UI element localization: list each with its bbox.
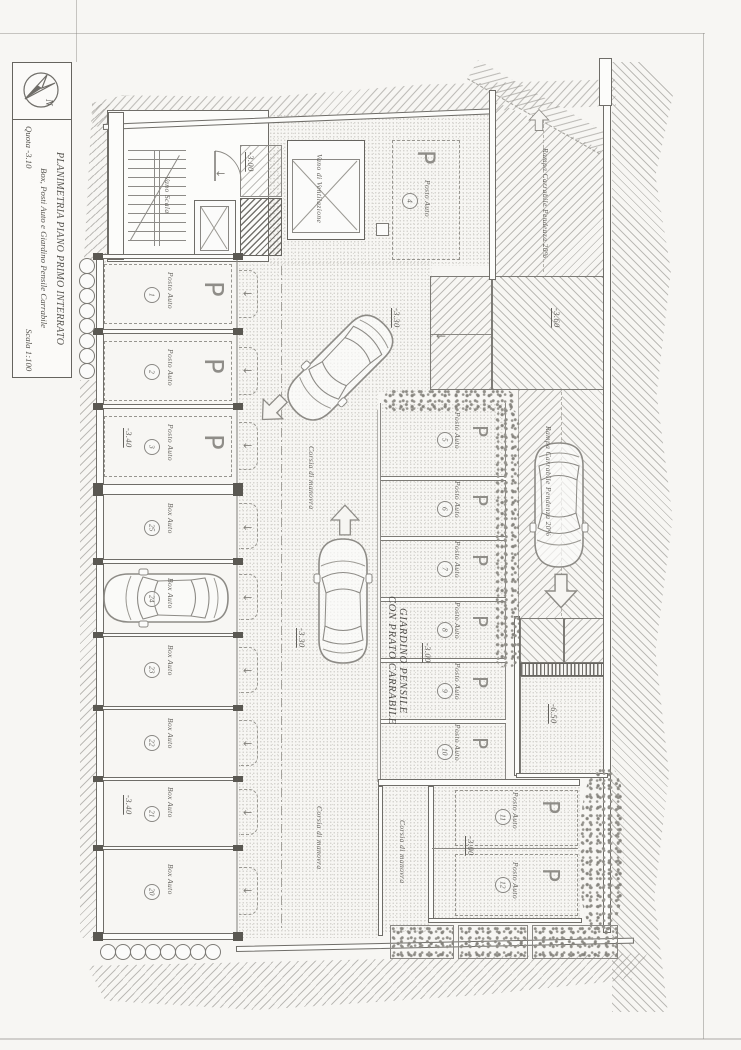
cell-wall: [96, 933, 238, 940]
drain-circle: [79, 273, 95, 289]
cell-wall: [96, 633, 238, 637]
vegetation-planter-3: [532, 925, 618, 959]
drain-circle: [79, 363, 95, 379]
spot-label-1: Posto Auto: [166, 272, 175, 309]
spot-label-12: Posto Auto: [511, 862, 520, 899]
door-arrow-icon-1: ←: [243, 288, 252, 299]
ramp-lane-label: Rampa Carrabile Pendenza 20%: [544, 426, 553, 537]
vegetation-planter-1: [390, 925, 454, 959]
drain-circle: [160, 944, 176, 960]
box-number-badge-23: 23: [144, 662, 160, 678]
box-number-badge-22: 22: [144, 735, 160, 751]
door-arrow-icon-23: ←: [243, 665, 252, 676]
cell-wall: [96, 706, 238, 710]
corsia-label-2: Corsia di manovra: [315, 806, 324, 869]
quota-garden: -3.00: [423, 643, 433, 663]
wall-right-stub: [599, 58, 612, 106]
spot-number-badge-6: 6: [437, 501, 453, 517]
stair-block-left-wall: [108, 112, 124, 260]
wall-garden-bottom: [378, 779, 580, 786]
ventilation-room-label: Vano di Ventilazione: [315, 154, 324, 223]
door-arrow-icon-3: ←: [243, 440, 252, 451]
corsia-up-arrow-icon: [330, 503, 360, 537]
door-arrow-icon-2: ←: [243, 365, 252, 376]
pit-chevron-left: [520, 618, 564, 663]
drain-circle: [145, 944, 161, 960]
title-block-text: PLANIMETRIA PIANO PRIMO INTERRATO Box, P…: [17, 126, 67, 371]
corsia-label-3: Corsia di manovra: [398, 820, 407, 883]
drain-circle: [100, 944, 116, 960]
scan-line-bottom: [0, 1038, 741, 1040]
ventilation-shaft: [287, 140, 365, 240]
spot-label-10: Posto Auto: [453, 724, 462, 761]
box-label-21: Box Auto: [166, 787, 175, 818]
garden-row-separator: [381, 476, 506, 481]
cell-wall: [96, 404, 238, 409]
spot-label-11: Posto Auto: [511, 792, 520, 829]
torn-band-bottom: [88, 953, 649, 1013]
box-number-badge-20: 20: [144, 884, 160, 900]
box-label-24: Box Auto: [166, 578, 175, 609]
pit-floor: [520, 676, 607, 775]
drawing-subtitle: Box, Posti Auto e Giardino Pensile Carra…: [36, 126, 51, 371]
spot-number-badge-11: 11: [495, 809, 511, 825]
spot-number-badge-5: 5: [437, 432, 453, 448]
spot-number-badge-4: 4: [402, 193, 418, 209]
torn-band-left: [80, 380, 97, 938]
quota-corsia-lower: -3.30: [297, 628, 307, 648]
parking-p-symbol-11: P: [538, 800, 561, 814]
scale-note: Scala 1:100: [21, 329, 36, 371]
spot-label-2: Posto Auto: [166, 349, 175, 386]
drain-circles-left: [79, 258, 96, 378]
ramp-down-arrow-icon: [544, 572, 578, 610]
cell-wall: [96, 484, 238, 495]
garden-curb-line: [377, 410, 378, 782]
parking-p-symbol-9: P: [470, 676, 490, 688]
pit-chevron-right: [564, 618, 607, 663]
box-label-25: Box Auto: [166, 503, 175, 534]
quota-spot-3: -3.40: [124, 428, 134, 448]
spot-label-8: Posto Auto: [453, 602, 462, 639]
parking-p-symbol-1: P: [200, 281, 226, 297]
spot-number-badge-8: 8: [437, 622, 453, 638]
spot-number-badge-3: 3: [144, 439, 160, 455]
wall-corsia2-left: [378, 786, 383, 936]
drain-circle: [79, 348, 95, 364]
parking-p-symbol-5: P: [470, 425, 490, 437]
north-arrow-icon: N: [13, 63, 69, 118]
drawing-notes: Quota -3.10 Scala 1:100: [21, 126, 36, 371]
parking-p-symbol-4: P: [414, 150, 438, 164]
drain-circle: [175, 944, 191, 960]
box-label-22: Box Auto: [166, 718, 175, 749]
floor-drain-box: [376, 223, 389, 236]
stair-door-arrow-icon: ←: [216, 168, 225, 179]
parking-p-symbol-10: P: [470, 737, 490, 749]
spot-label-7: Posto Auto: [453, 541, 462, 578]
door-arrow-icon-22: ←: [243, 738, 252, 749]
drain-circle: [79, 258, 95, 274]
title-block: PLANIMETRIA PIANO PRIMO INTERRATO Box, P…: [12, 119, 72, 378]
cell-wall: [96, 846, 238, 850]
box-number-badge-25: 25: [144, 520, 160, 536]
north-arrow-box: N: [12, 62, 72, 121]
parking-p-symbol-8: P: [470, 615, 490, 627]
shaft-hatch-dark: [240, 198, 282, 256]
car-icon-corsia: [312, 536, 374, 666]
parking-p-symbol-12: P: [538, 868, 561, 882]
drain-circle: [190, 944, 206, 960]
quota-corsia-upper: -3.30: [392, 308, 402, 328]
scanned-floor-plan-sheet: N PLANIMETRIA PIANO PRIMO INTERRATO Box,…: [0, 0, 741, 1050]
bottom-spots-bottom-wall: [428, 918, 582, 923]
spot-number-badge-9: 9: [437, 683, 453, 699]
box-label-23: Box Auto: [166, 645, 175, 676]
quota-stair-door: -3.00: [246, 152, 256, 172]
garden-label: GIARDINO PENSILE CON PRATO CARRABILE: [386, 578, 408, 743]
ramp-turn-right: [492, 276, 605, 390]
box-label-20: Box Auto: [166, 864, 175, 895]
corsia-label-1: Corsia di manovra: [307, 446, 316, 509]
cell-wall: [96, 777, 238, 781]
drain-circle: [205, 944, 221, 960]
spot-label-5: Posto Auto: [453, 412, 462, 449]
box-number-badge-21: 21: [144, 806, 160, 822]
spot-number-badge-10: 10: [437, 744, 453, 760]
spot-number-badge-2: 2: [144, 364, 160, 380]
spot-label-6: Posto Auto: [453, 481, 462, 518]
scan-line-right: [703, 33, 704, 1039]
garden-label-line2: CON PRATO CARRABILE: [386, 578, 397, 743]
drain-circle: [79, 303, 95, 319]
north-letter: N: [43, 98, 54, 107]
wall-cell-face: [236, 256, 238, 935]
quota-pit: -6.50: [549, 704, 559, 724]
elevator: [194, 200, 236, 258]
door-arrow-icon-20: ←: [243, 885, 252, 896]
ramp-up-arrow-icon: [528, 108, 550, 132]
scan-line-top: [0, 33, 705, 34]
garden-label-line1: GIARDINO PENSILE: [397, 578, 408, 743]
cell-wall: [96, 559, 238, 564]
spot-label-4: Posto Auto: [423, 180, 432, 217]
vegetation-right: [580, 768, 624, 930]
quota-note: Quota -3.10: [21, 126, 36, 169]
box-number-badge-24: 24: [144, 591, 160, 607]
drain-circles-bottom: [100, 944, 236, 959]
quota-bottom-spots: -3.00: [466, 836, 476, 856]
ramp-top-label: Rampa Carrabile Pendenza 20%: [541, 148, 550, 259]
wall-ramp-left: [489, 90, 496, 280]
hedge-top: [383, 389, 515, 413]
parking-p-symbol-3: P: [200, 434, 226, 450]
cell-wall: [96, 329, 238, 334]
bottom-spots-left-wall: [428, 786, 434, 922]
spot-label-3: Posto Auto: [166, 424, 175, 461]
vegetation-planter-2: [458, 925, 528, 959]
garden-row-separator: [381, 536, 506, 541]
scan-line-left: [76, 0, 77, 62]
parking-p-symbol-2: P: [200, 358, 226, 374]
quota-box-21: -3.40: [124, 795, 134, 815]
parking-p-symbol-6: P: [470, 494, 490, 506]
elevator-x-icon: [195, 201, 233, 255]
corsia-centerline: [281, 266, 282, 930]
drain-circle: [79, 288, 95, 304]
spot-number-badge-12: 12: [495, 877, 511, 893]
ventilation-x-icon: [288, 141, 362, 237]
door-arrow-icon-24: ←: [243, 592, 252, 603]
cell-wall: [96, 254, 238, 259]
quota-ramp-turn: -3.60: [552, 308, 562, 328]
drain-circle: [130, 944, 146, 960]
stair-room-label: Vano Scala: [163, 176, 172, 214]
door-arrow-icon-25: ←: [243, 522, 252, 533]
car-icon-ramp: [528, 440, 590, 570]
spot-number-badge-1: 1: [144, 287, 160, 303]
hedge-right: [495, 408, 519, 668]
parking-p-symbol-7: P: [470, 554, 490, 566]
spot-number-badge-7: 7: [437, 561, 453, 577]
drawing-title: PLANIMETRIA PIANO PRIMO INTERRATO: [51, 126, 67, 371]
bottom-spots-divider: [432, 848, 578, 849]
pit-sill-grate: [520, 663, 607, 676]
spot-label-9: Posto Auto: [453, 663, 462, 700]
drain-circle: [115, 944, 131, 960]
drain-circle: [79, 333, 95, 349]
ramp-turn-arrow-icon: ←: [436, 330, 446, 342]
drain-circle: [79, 318, 95, 334]
door-arrow-icon-21: ←: [243, 807, 252, 818]
